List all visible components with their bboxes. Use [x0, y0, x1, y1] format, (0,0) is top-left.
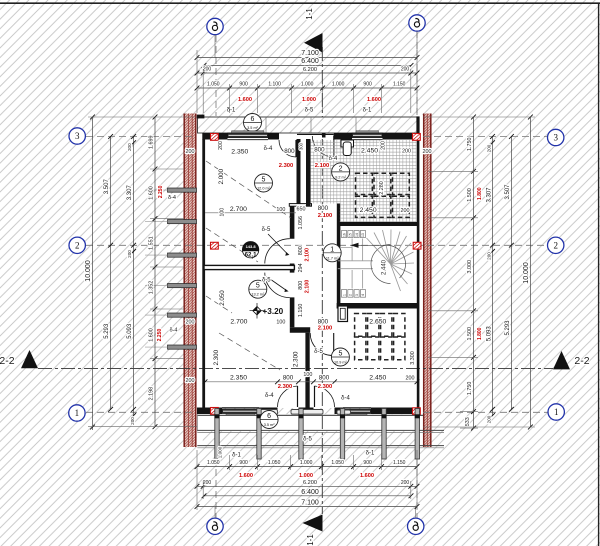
svg-text:1.050: 1.050: [207, 460, 220, 466]
svg-text:3.000: 3.000: [467, 260, 473, 274]
svg-text:5: 5: [338, 351, 342, 358]
svg-text:3: 3: [355, 294, 359, 296]
svg-text:1-1: 1-1: [306, 534, 315, 546]
svg-text:3: 3: [553, 133, 558, 143]
svg-text:2.100: 2.100: [315, 163, 330, 169]
svg-text:2.300: 2.300: [279, 163, 294, 169]
svg-text:1: 1: [75, 408, 80, 418]
svg-text:2.350: 2.350: [231, 149, 248, 156]
svg-text:δ-4: δ-4: [264, 146, 273, 152]
svg-text:δ-4: δ-4: [168, 195, 176, 201]
svg-text:800: 800: [314, 147, 325, 154]
svg-text:1.150: 1.150: [393, 460, 406, 466]
svg-text:1.750: 1.750: [467, 138, 473, 152]
svg-text:100: 100: [303, 372, 312, 378]
svg-text:1: 1: [342, 294, 346, 296]
svg-text:294: 294: [298, 263, 304, 272]
svg-text:δ-5: δ-5: [305, 108, 314, 114]
svg-text:200: 200: [130, 417, 135, 425]
svg-text:1.600: 1.600: [149, 186, 155, 200]
svg-text:3.5 m²: 3.5 m²: [247, 126, 258, 130]
svg-text:11.7 m²: 11.7 m²: [326, 256, 339, 260]
svg-text:5: 5: [256, 283, 260, 290]
svg-text:800: 800: [318, 205, 329, 212]
svg-text:200: 200: [406, 376, 415, 382]
svg-text:650: 650: [297, 207, 306, 213]
svg-text:200: 200: [401, 480, 410, 486]
svg-text:13.2 m²: 13.2 m²: [251, 293, 265, 297]
svg-text:200: 200: [186, 149, 195, 155]
svg-text:16: 16: [342, 233, 346, 237]
svg-text:1.600: 1.600: [360, 473, 374, 479]
svg-text:2.300: 2.300: [278, 384, 293, 390]
svg-text:3: 3: [75, 131, 80, 141]
svg-text:2: 2: [339, 165, 343, 172]
svg-text:2.440: 2.440: [382, 259, 388, 275]
svg-text:800: 800: [319, 375, 330, 382]
svg-text:2.700: 2.700: [230, 206, 247, 213]
svg-text:δ-4: δ-4: [341, 396, 350, 402]
svg-text:200: 200: [203, 480, 212, 486]
svg-text:1.600: 1.600: [239, 473, 253, 479]
svg-text:200: 200: [127, 250, 132, 258]
svg-text:1.050: 1.050: [207, 82, 220, 88]
svg-text:9.2 m²: 9.2 m²: [335, 175, 346, 179]
svg-text:1.000: 1.000: [299, 473, 313, 479]
svg-text:4: 4: [361, 294, 365, 296]
svg-text:2.100: 2.100: [318, 213, 333, 219]
svg-text:1.000: 1.000: [302, 97, 316, 103]
svg-text:1.500: 1.500: [467, 327, 473, 341]
svg-text:200: 200: [487, 144, 492, 152]
svg-text:2.450: 2.450: [369, 375, 386, 382]
svg-text:6: 6: [251, 116, 255, 123]
svg-text:200: 200: [381, 141, 387, 150]
svg-text:1.050: 1.050: [268, 460, 281, 466]
svg-text:1.352: 1.352: [149, 281, 155, 295]
svg-text:7.100: 7.100: [301, 50, 319, 57]
svg-text:1.150: 1.150: [393, 82, 406, 88]
svg-text:1.050: 1.050: [331, 460, 344, 466]
svg-text:2.350: 2.350: [230, 375, 247, 382]
svg-text:2.000: 2.000: [218, 168, 225, 184]
svg-text:1: 1: [330, 246, 334, 253]
svg-text:200: 200: [487, 252, 492, 260]
svg-text:3.507: 3.507: [104, 179, 110, 195]
svg-text:1.551: 1.551: [149, 236, 155, 250]
svg-text:+3.20: +3.20: [263, 307, 284, 316]
svg-text:δ-4: δ-4: [169, 327, 177, 333]
svg-text:800: 800: [298, 246, 304, 255]
svg-text:62.1: 62.1: [245, 252, 258, 259]
svg-text:5.293: 5.293: [104, 323, 110, 339]
svg-text:1.150: 1.150: [298, 304, 304, 318]
svg-text:δ-4: δ-4: [329, 156, 338, 162]
svg-text:2.250: 2.250: [157, 329, 163, 342]
svg-text:1.600: 1.600: [367, 97, 381, 103]
svg-text:2: 2: [75, 241, 80, 251]
svg-text:800: 800: [283, 375, 294, 382]
svg-text:300: 300: [299, 142, 304, 150]
svg-text:200: 200: [186, 320, 195, 326]
svg-text:δ-4: δ-4: [265, 393, 274, 399]
svg-text:5.293: 5.293: [505, 320, 511, 336]
svg-text:1.056: 1.056: [298, 216, 304, 230]
svg-text:2.450: 2.450: [361, 148, 378, 155]
svg-text:2.280: 2.280: [379, 181, 385, 195]
svg-text:200: 200: [127, 143, 132, 151]
svg-text:6.400: 6.400: [301, 489, 319, 496]
svg-text:3.300: 3.300: [410, 351, 416, 365]
svg-text:900: 900: [363, 460, 372, 466]
svg-text:200: 200: [423, 149, 432, 155]
svg-text:100: 100: [219, 208, 225, 217]
svg-text:100: 100: [276, 207, 285, 213]
svg-text:2.300: 2.300: [293, 351, 300, 367]
svg-text:δ-5: δ-5: [314, 349, 323, 355]
svg-text:1.000: 1.000: [301, 82, 314, 88]
svg-text:2.250: 2.250: [158, 185, 164, 198]
svg-text:1.500: 1.500: [467, 188, 473, 202]
svg-text:200: 200: [186, 378, 195, 384]
svg-text:δ-1: δ-1: [232, 453, 241, 459]
svg-text:1.800: 1.800: [477, 187, 483, 200]
svg-text:2.300: 2.300: [213, 349, 220, 365]
svg-text:1.000: 1.000: [332, 82, 345, 88]
svg-text:6: 6: [267, 413, 271, 420]
svg-text:3.307: 3.307: [127, 185, 133, 201]
svg-text:200: 200: [401, 208, 410, 214]
svg-text:900: 900: [239, 460, 248, 466]
svg-text:5.093: 5.093: [487, 326, 493, 342]
svg-text:1.600: 1.600: [238, 97, 252, 103]
svg-text:900: 900: [363, 82, 372, 88]
svg-text:200: 200: [203, 67, 212, 73]
svg-text:900: 900: [239, 82, 248, 88]
svg-text:1: 1: [554, 407, 559, 417]
svg-text:200: 200: [402, 149, 411, 155]
svg-text:δ-1: δ-1: [363, 108, 372, 114]
svg-text:3.307: 3.307: [487, 187, 493, 203]
svg-text:800: 800: [318, 319, 329, 326]
svg-text:800: 800: [284, 148, 295, 155]
svg-text:1.699: 1.699: [149, 136, 155, 150]
svg-text:533: 533: [465, 417, 471, 426]
svg-text:5: 5: [262, 177, 266, 184]
svg-text:2.450: 2.450: [360, 207, 377, 214]
svg-text:δ-5: δ-5: [303, 437, 312, 443]
svg-text:143.8: 143.8: [246, 244, 257, 249]
svg-text:800: 800: [298, 281, 304, 290]
svg-text:2.198: 2.198: [149, 387, 155, 401]
svg-text:2-2: 2-2: [574, 355, 589, 367]
svg-text:2.100: 2.100: [304, 248, 310, 262]
svg-text:2-2: 2-2: [0, 355, 15, 367]
svg-text:2.300: 2.300: [318, 384, 333, 390]
svg-text:1.100: 1.100: [268, 82, 281, 88]
svg-text:δ-1: δ-1: [227, 108, 236, 114]
svg-text:1.600: 1.600: [149, 328, 155, 342]
svg-text:2: 2: [553, 241, 558, 251]
svg-text:7.100: 7.100: [301, 499, 319, 506]
svg-text:200: 200: [487, 415, 492, 423]
svg-text:200: 200: [218, 141, 224, 150]
svg-text:200: 200: [401, 67, 410, 73]
svg-text:δ-5: δ-5: [262, 278, 271, 284]
svg-text:2.700: 2.700: [230, 319, 247, 326]
svg-text:10.000: 10.000: [85, 260, 92, 282]
svg-text:2: 2: [349, 294, 353, 296]
svg-text:1.750: 1.750: [467, 382, 473, 396]
svg-text:1.800: 1.800: [477, 327, 483, 340]
svg-text:2.100: 2.100: [318, 326, 333, 332]
svg-text:5.093: 5.093: [127, 323, 133, 339]
svg-text:1.000: 1.000: [218, 446, 223, 458]
svg-text:15: 15: [349, 233, 353, 237]
svg-text:δ-5: δ-5: [262, 227, 271, 233]
svg-text:13: 13: [361, 233, 365, 237]
svg-text:100: 100: [276, 320, 285, 326]
svg-text:6.400: 6.400: [301, 58, 319, 65]
svg-text:3.5 m²: 3.5 m²: [264, 423, 275, 427]
svg-text:14: 14: [355, 233, 359, 237]
svg-text:10.9 m²: 10.9 m²: [334, 361, 348, 365]
svg-text:10.000: 10.000: [523, 262, 530, 284]
svg-text:3.507: 3.507: [505, 184, 511, 200]
svg-text:12.0 m²: 12.0 m²: [257, 187, 271, 191]
svg-text:2.650: 2.650: [369, 319, 386, 326]
svg-text:2.050: 2.050: [219, 290, 226, 306]
svg-text:δ-1: δ-1: [366, 451, 375, 457]
svg-text:6.200: 6.200: [303, 480, 317, 486]
svg-text:1.000: 1.000: [300, 460, 313, 466]
svg-text:1-1: 1-1: [305, 8, 314, 20]
svg-text:6.200: 6.200: [303, 67, 317, 73]
svg-text:2.100: 2.100: [304, 280, 310, 294]
